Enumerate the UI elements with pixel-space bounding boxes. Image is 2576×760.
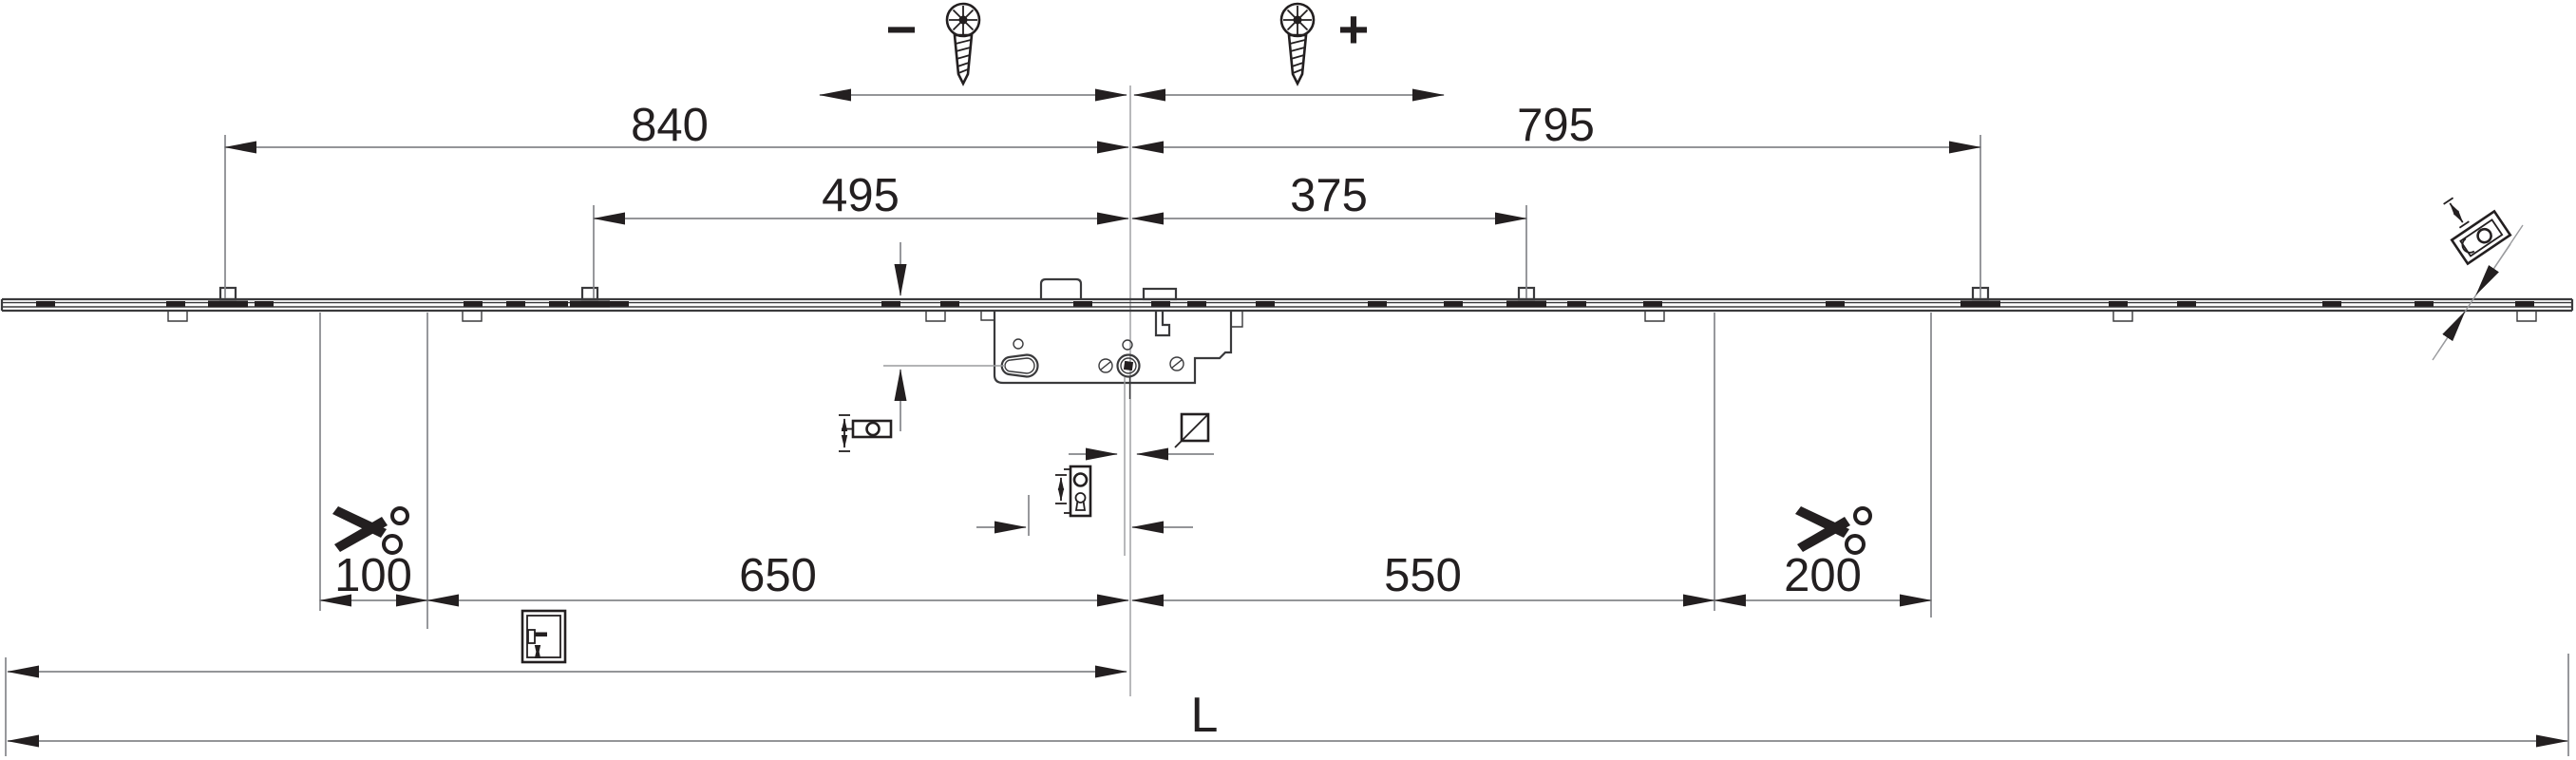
scissors-cut-icon — [332, 506, 407, 553]
dim-label: 550 — [1384, 550, 1462, 601]
tilt-cam-adjust-icon — [2433, 198, 2523, 360]
minus-sign: − — [886, 0, 918, 59]
case-screw — [1099, 357, 1184, 372]
dim-label: 200 — [1784, 550, 1862, 601]
case-hole — [1013, 339, 1023, 349]
plus-sign: + — [1338, 0, 1370, 59]
handle-cylinder-plate-icon — [1055, 466, 1090, 516]
faceplate-rail — [2, 288, 2572, 321]
screw-icon — [1281, 4, 1314, 84]
dim-200: 200 — [1714, 550, 1931, 601]
dim-label: 650 — [739, 550, 817, 601]
dim-795: 795 — [1132, 100, 1980, 298]
roller-cam-height-adjust-icon — [839, 415, 891, 451]
dim-550: 550 — [1132, 550, 1714, 601]
rail-screw-slots — [36, 301, 2534, 307]
door-handle-height-icon — [522, 611, 565, 662]
square-spindle-icon — [1175, 414, 1208, 447]
total-length-label: L — [1191, 688, 1219, 743]
spindle-hub — [1118, 355, 1140, 377]
dim-100: 100 — [320, 550, 427, 601]
lock-gearbox — [981, 279, 1242, 556]
lock-dimension-diagram: − + 840 795 495 375 — [0, 0, 2576, 760]
screw-icon — [947, 4, 979, 84]
dim-label: 795 — [1517, 100, 1595, 151]
technical-drawing-page: − + 840 795 495 375 — [0, 0, 2576, 760]
latch-block — [1041, 279, 1081, 299]
dim-840: 840 — [225, 100, 1128, 298]
dim-rail-to-cylinder-axis — [883, 242, 1005, 431]
rail-mount-tabs — [168, 311, 2536, 321]
keyhole — [1002, 355, 1038, 377]
dim-label: 375 — [1290, 170, 1368, 221]
adjustment-dim-minus: − — [820, 0, 1127, 95]
dim-label: 840 — [631, 100, 709, 151]
dim-total-L: L — [6, 654, 2568, 756]
dim-650: 650 — [427, 550, 1128, 601]
dim-label: 495 — [822, 170, 900, 221]
scissors-cut-icon — [1795, 506, 1870, 553]
hook-bolt — [1144, 289, 1176, 335]
dim-label: 100 — [334, 550, 412, 601]
dim-375: 375 — [1132, 170, 1526, 298]
